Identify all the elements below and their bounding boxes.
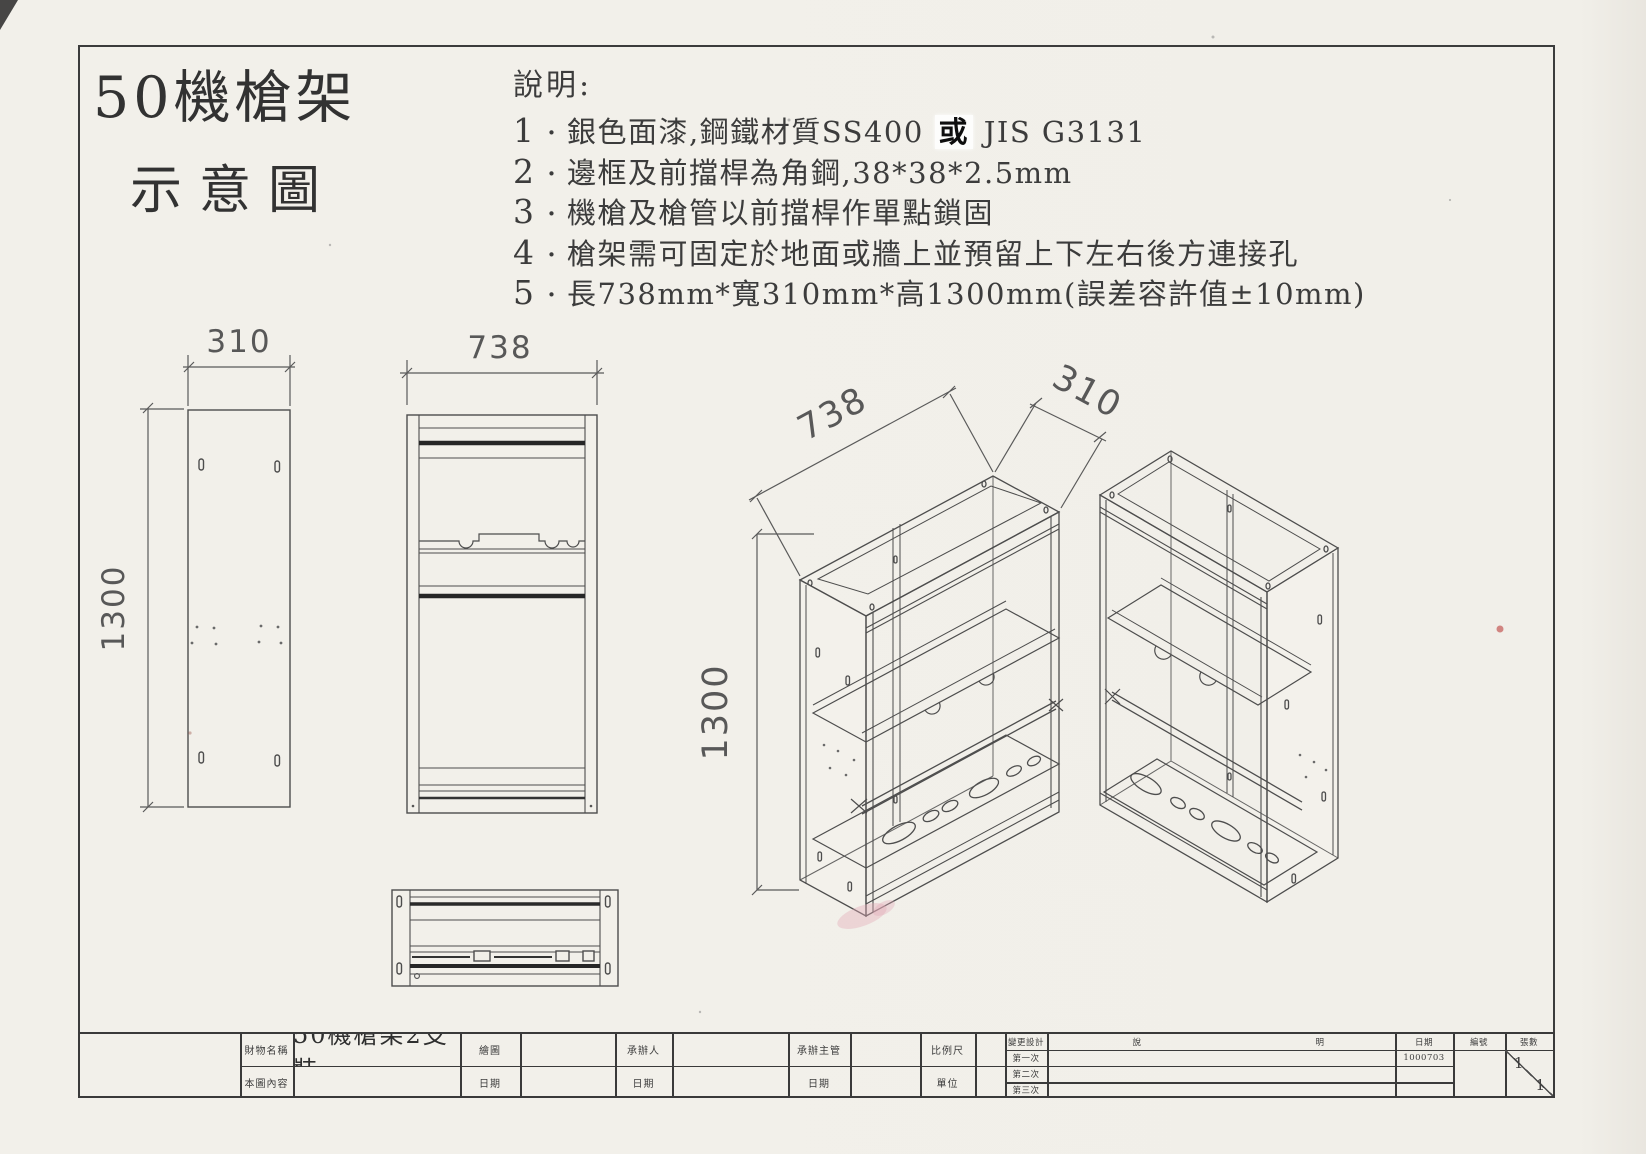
side-view-hole-dots — [191, 625, 283, 646]
drawing-sheet: 50機槍架 示意圖 說明: 1・銀色面漆,鋼鐵材質SS400 或 JIS G31… — [0, 0, 1646, 1154]
property-name-label: 財物名稱 — [240, 1034, 293, 1066]
change-design-label: 變更設計 — [1005, 1034, 1047, 1050]
sheet-total: 1 — [1535, 1076, 1545, 1094]
supervisor-date-label: 日期 — [788, 1066, 850, 1101]
drawn-by-label: 繪圖 — [460, 1034, 520, 1066]
side-height-dim-label: 1300 — [96, 565, 132, 652]
change-row-1-label: 第一次 — [1005, 1050, 1047, 1066]
sheet-number-cell: 1 1 — [1505, 1050, 1553, 1097]
sheet-label: 張數 — [1505, 1034, 1553, 1050]
red-dot-mark — [1497, 626, 1504, 633]
content-label: 本圖內容 — [240, 1066, 293, 1101]
first-change-date-value: 1000703 — [1395, 1050, 1453, 1066]
change-date-header: 日期 — [1395, 1034, 1453, 1050]
title-block-line — [1005, 1050, 1553, 1052]
handler-label: 承辦人 — [615, 1034, 672, 1066]
sheet-current: 1 — [1514, 1054, 1524, 1072]
scale-label: 比例尺 — [920, 1034, 975, 1066]
iso-depth-dim-label: 310 — [1046, 357, 1129, 427]
change-row-3-label: 第三次 — [1005, 1082, 1047, 1098]
iso-height-dim-label: 1300 — [696, 663, 736, 760]
side-view-dimensions — [140, 355, 295, 812]
unit-label: 單位 — [920, 1066, 975, 1101]
drawing-views: 310 1300 738 — [0, 0, 1646, 1154]
bottom-view — [392, 890, 618, 986]
scan-corner-mark — [0, 0, 18, 30]
description-header-right: 明 — [1310, 1034, 1330, 1050]
description-header-left: 說 — [1127, 1034, 1147, 1050]
front-width-dim-label: 738 — [467, 330, 532, 366]
title-block-line — [1005, 1066, 1453, 1068]
supervisor-label: 承辦主管 — [788, 1034, 850, 1066]
title-block-line — [1005, 1082, 1453, 1084]
number-label: 編號 — [1453, 1034, 1505, 1050]
front-view — [407, 415, 597, 813]
title-block: 財物名稱 50機槍架2支裝 本圖內容 繪圖 日期 承辦人 日期 承辦主管 日期 … — [78, 1032, 1555, 1098]
property-name-value: 50機槍架2支裝 — [293, 1034, 460, 1066]
pink-smudges — [834, 626, 1503, 935]
iso-view-1 — [800, 476, 1063, 916]
drawn-date-label: 日期 — [460, 1066, 520, 1101]
change-row-2-label: 第二次 — [1005, 1066, 1047, 1083]
front-view-dimensions — [400, 360, 604, 405]
side-width-dim-label: 310 — [206, 324, 271, 360]
handler-date-label: 日期 — [615, 1066, 672, 1101]
side-view — [188, 410, 290, 807]
iso-view-2 — [1100, 451, 1338, 902]
